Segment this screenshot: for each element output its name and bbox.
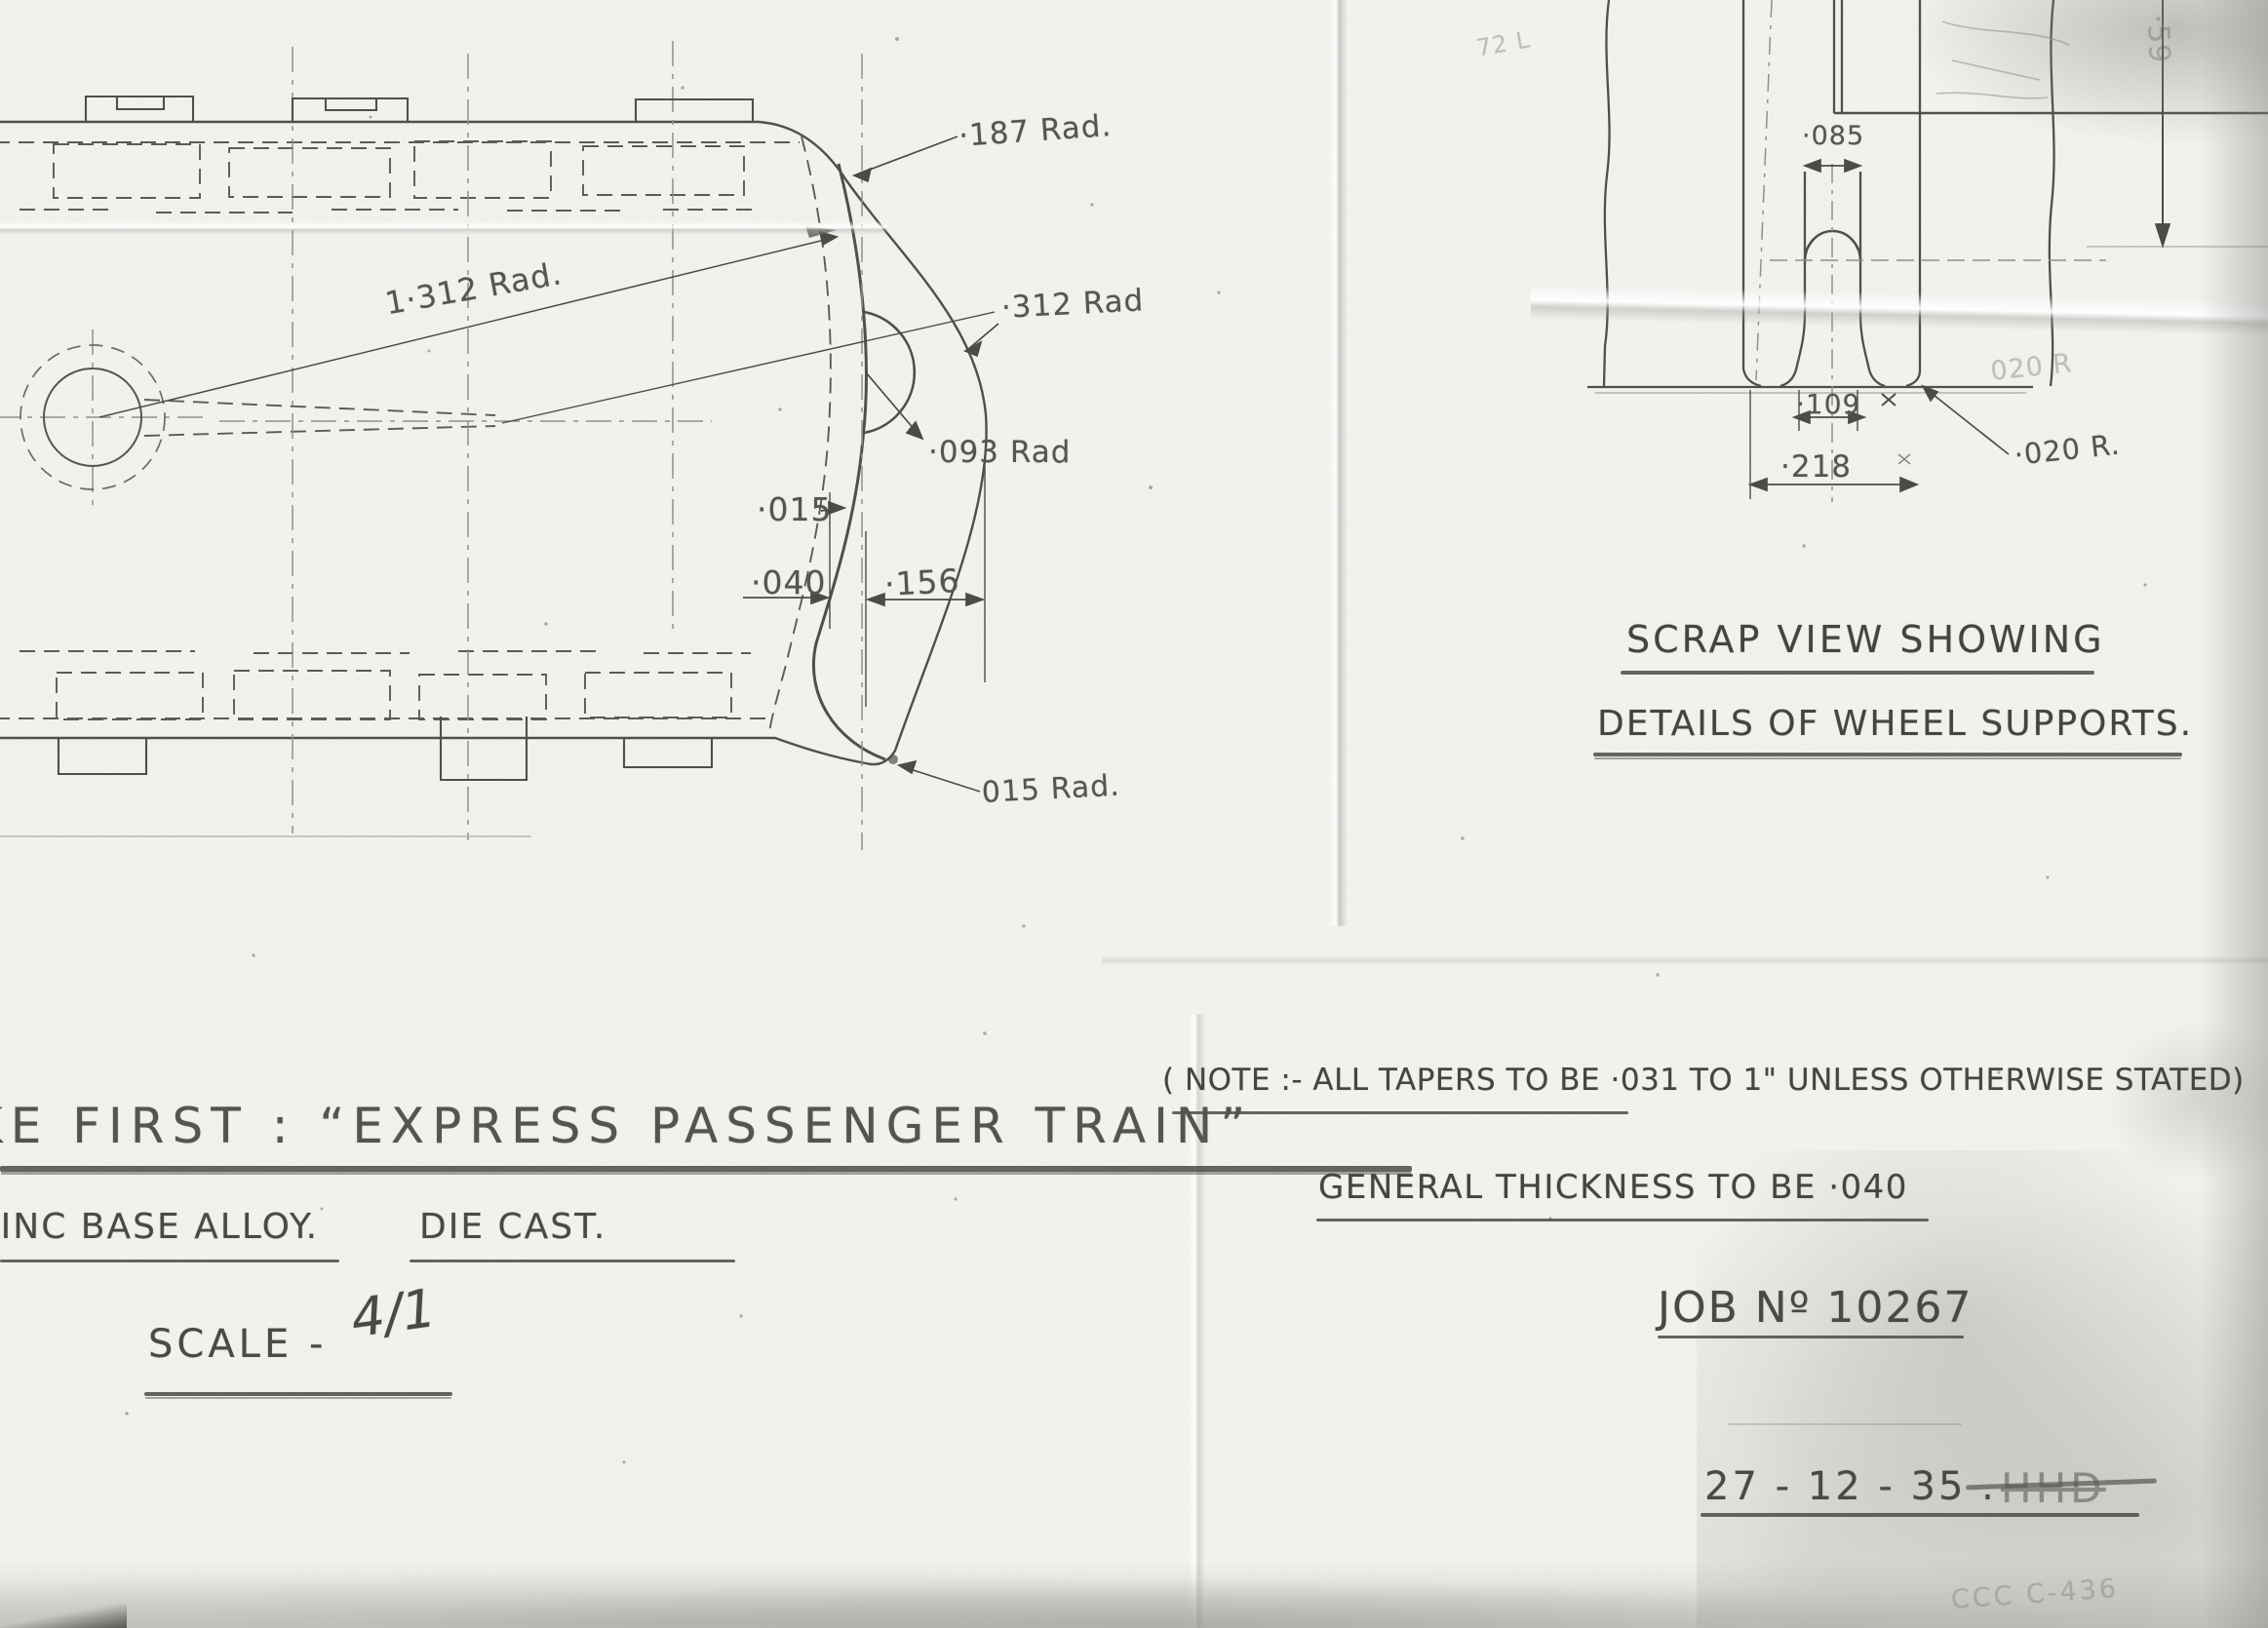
scale-underline <box>144 1392 452 1396</box>
blueprint-sheet: ·187 Rad. 1·312 Rad. ·312 Rad ·093 Rad ·… <box>0 0 2268 1628</box>
annotation-rad-312: ·312 Rad <box>1000 283 1145 326</box>
annotation-dim-218: ·218 <box>1780 449 1852 485</box>
title-underline <box>0 1166 1412 1172</box>
note-line2-underline <box>1316 1219 1929 1221</box>
process-label: DIE CAST. <box>419 1207 606 1247</box>
scrap-caption1-underline <box>1621 671 2094 675</box>
material-label: ZINC BASE ALLOY. <box>0 1207 319 1247</box>
process-underline <box>410 1260 735 1262</box>
date-label: 27 - 12 - 35 . <box>1704 1464 1997 1509</box>
date-underline <box>1701 1513 2139 1517</box>
annotation-ghost-59: ·59 <box>2140 14 2176 64</box>
paper-grain <box>0 0 2268 1628</box>
job-underline <box>1658 1336 1964 1338</box>
note-line2: GENERAL THICKNESS TO BE ·040 <box>1318 1168 1908 1207</box>
scrap-caption2-underline <box>1593 753 2182 756</box>
faint-erased-line <box>1728 1423 1962 1425</box>
drawing-title: KE FIRST : “EXPRESS PASSENGER TRAIN” <box>0 1098 1253 1154</box>
job-number: JOB Nº 10267 <box>1658 1283 1973 1333</box>
scrap-view-caption-line2: DETAILS OF WHEEL SUPPORTS. <box>1597 704 2193 744</box>
scale-label: SCALE - <box>148 1322 327 1367</box>
drawing-linework <box>0 0 2268 1628</box>
scale-value: 4/1 <box>347 1277 440 1349</box>
annotation-rad-015: 015 Rad. <box>981 769 1121 810</box>
annotation-dim-109: ·109 <box>1796 388 1860 420</box>
annotation-rad-093: ·093 Rad <box>928 435 1071 470</box>
annotation-dim-040: ·040 <box>751 563 826 601</box>
annotation-dim-156: ·156 <box>883 562 960 603</box>
annotation-dim-015: ·015 <box>757 490 832 528</box>
annotation-dim-085: ·085 <box>1802 121 1864 151</box>
note-line1: ( NOTE :- ALL TAPERS TO BE ·031 TO 1" UN… <box>1162 1063 2245 1098</box>
material-underline <box>0 1260 339 1262</box>
scrap-view-caption-line1: SCRAP VIEW SHOWING <box>1626 618 2105 661</box>
